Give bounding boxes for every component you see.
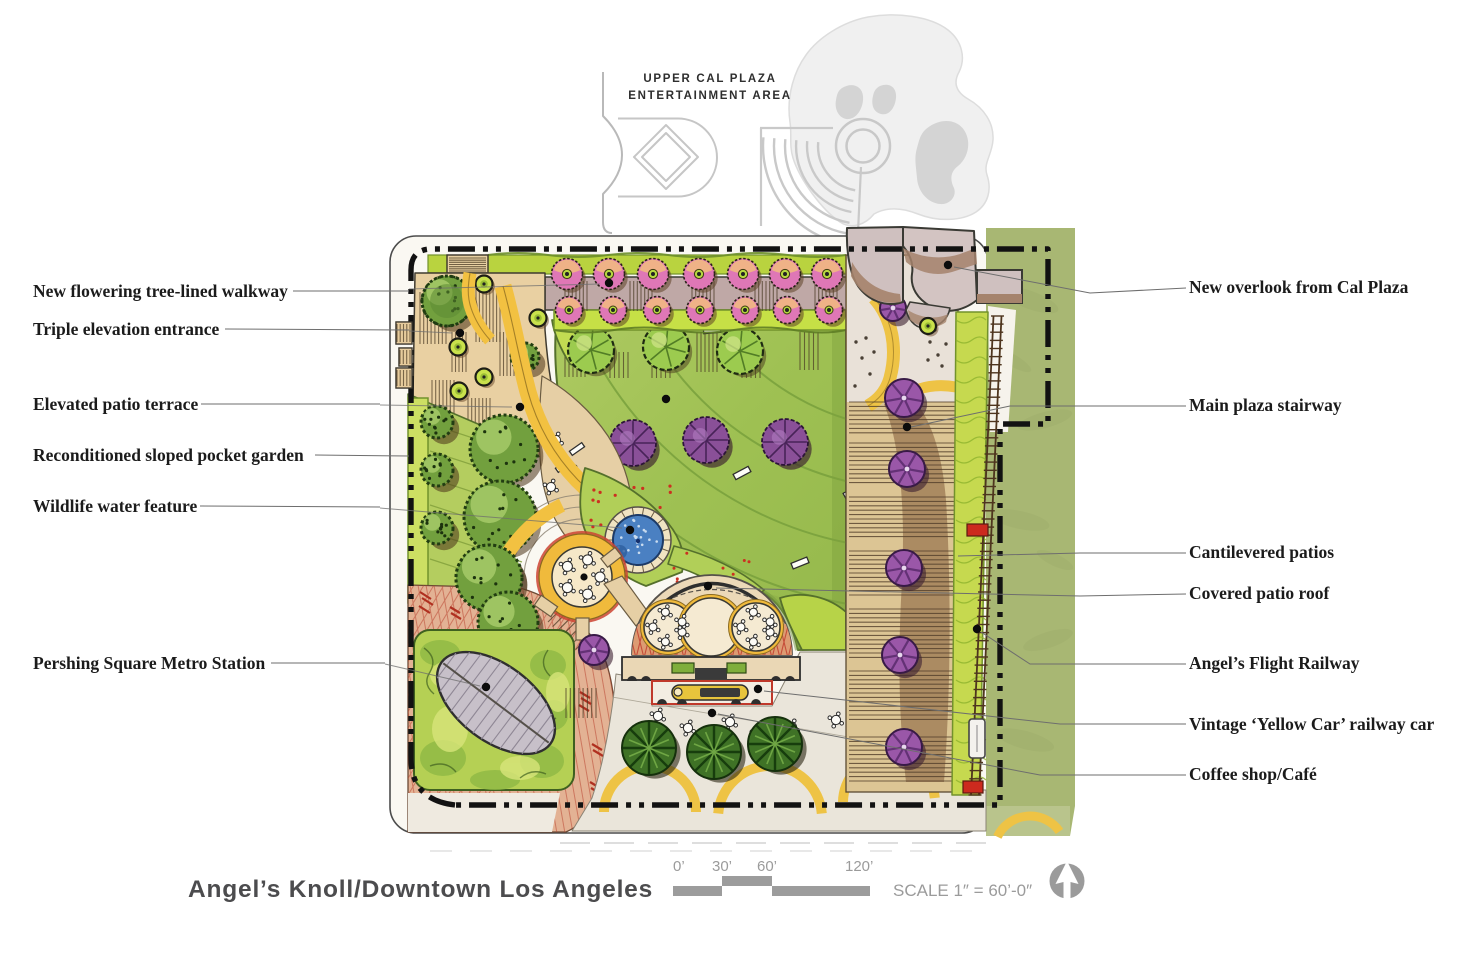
svg-text:Covered patio roof: Covered patio roof: [1189, 583, 1329, 603]
svg-text:ENTERTAINMENT AREA: ENTERTAINMENT AREA: [628, 90, 792, 102]
svg-text:Wildlife water feature: Wildlife water feature: [33, 496, 198, 516]
svg-text:SCALE 1″ = 60’-0″: SCALE 1″ = 60’-0″: [893, 881, 1032, 900]
svg-text:UPPER CAL PLAZA: UPPER CAL PLAZA: [643, 73, 776, 85]
svg-text:Main plaza stairway: Main plaza stairway: [1189, 395, 1342, 415]
svg-text:30’: 30’: [712, 858, 732, 875]
svg-text:Reconditioned sloped pocket ga: Reconditioned sloped pocket garden: [33, 445, 304, 465]
svg-text:New overlook from Cal Plaza: New overlook from Cal Plaza: [1189, 277, 1409, 297]
svg-text:Triple elevation entrance: Triple elevation entrance: [33, 319, 220, 339]
svg-text:60’: 60’: [757, 858, 777, 875]
svg-text:Coffee shop/Café: Coffee shop/Café: [1189, 764, 1317, 784]
svg-text:New flowering tree-lined walkw: New flowering tree-lined walkway: [33, 281, 288, 301]
svg-text:Angel’s Flight Railway: Angel’s Flight Railway: [1189, 653, 1360, 673]
svg-text:0’: 0’: [673, 858, 685, 875]
svg-text:120’: 120’: [845, 858, 873, 875]
svg-text:Vintage ‘Yellow Car’ railway c: Vintage ‘Yellow Car’ railway car: [1189, 714, 1434, 734]
svg-text:Elevated patio terrace: Elevated patio terrace: [33, 394, 198, 414]
svg-text:Cantilevered patios: Cantilevered patios: [1189, 542, 1334, 562]
svg-text:Pershing Square Metro Station: Pershing Square Metro Station: [33, 653, 265, 673]
svg-text:Angel’s Knoll/Downtown Los Ang: Angel’s Knoll/Downtown Los Angeles: [188, 876, 653, 903]
